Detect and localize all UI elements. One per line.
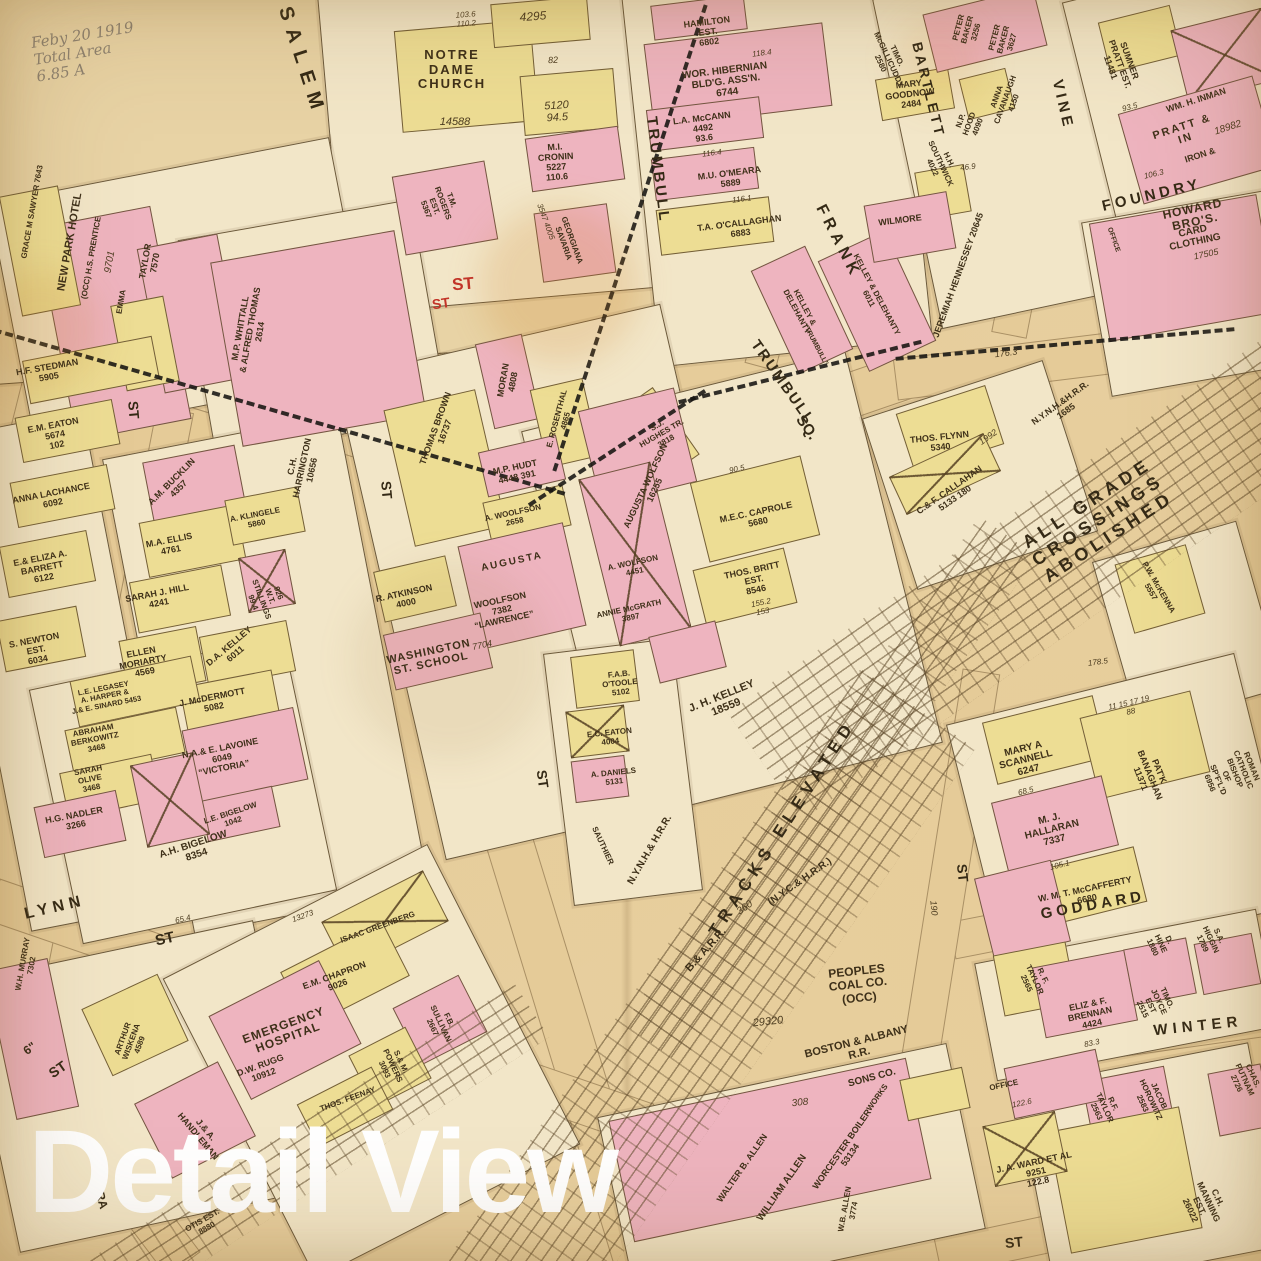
- dimension-number: 82: [548, 55, 559, 66]
- street-label: ST: [377, 480, 394, 499]
- parcel: [490, 0, 590, 48]
- dimension-number: 14588: [440, 116, 471, 128]
- dimension-number: 4295: [519, 9, 547, 24]
- dimension-number: 190: [928, 900, 939, 916]
- parcel: [520, 68, 619, 136]
- street-label: ST: [533, 769, 551, 789]
- dimension-number: 65.4: [174, 914, 191, 926]
- detail-view-overlay-text: Detail View: [28, 1104, 616, 1240]
- dimension-number: 308: [791, 1097, 809, 1110]
- dimension-number: 103.6 110.2: [455, 10, 476, 29]
- street-label: ST: [1004, 1234, 1023, 1251]
- map-label: NOTRE DAME CHURCH: [418, 48, 486, 92]
- street-label: ST: [124, 400, 141, 419]
- atlas-map: Feby 20 1919 Total Area 6.85 ASALEMTRUMB…: [0, 0, 1261, 1261]
- map-label: F.A.B. O'TOOLE 5102: [601, 669, 639, 699]
- map-label: PEOPLES COAL CO. (OCC): [827, 962, 889, 1008]
- dimension-number: 5120 94.5: [544, 99, 570, 125]
- map-label: SARAH OLIVE 3468: [73, 764, 106, 796]
- map-label: M.I. CRONIN 5227 110.6: [537, 141, 575, 184]
- dimension-number: 46.9: [960, 163, 977, 174]
- map-label: MARY GOODNOW 2484: [884, 76, 937, 112]
- map-label: HAMILTON EST. 6802: [683, 14, 733, 50]
- red-annotation: ST: [431, 295, 451, 313]
- street-label: ST: [953, 863, 970, 882]
- dimension-number: 178.5: [1087, 657, 1108, 669]
- red-annotation: ST: [451, 274, 474, 295]
